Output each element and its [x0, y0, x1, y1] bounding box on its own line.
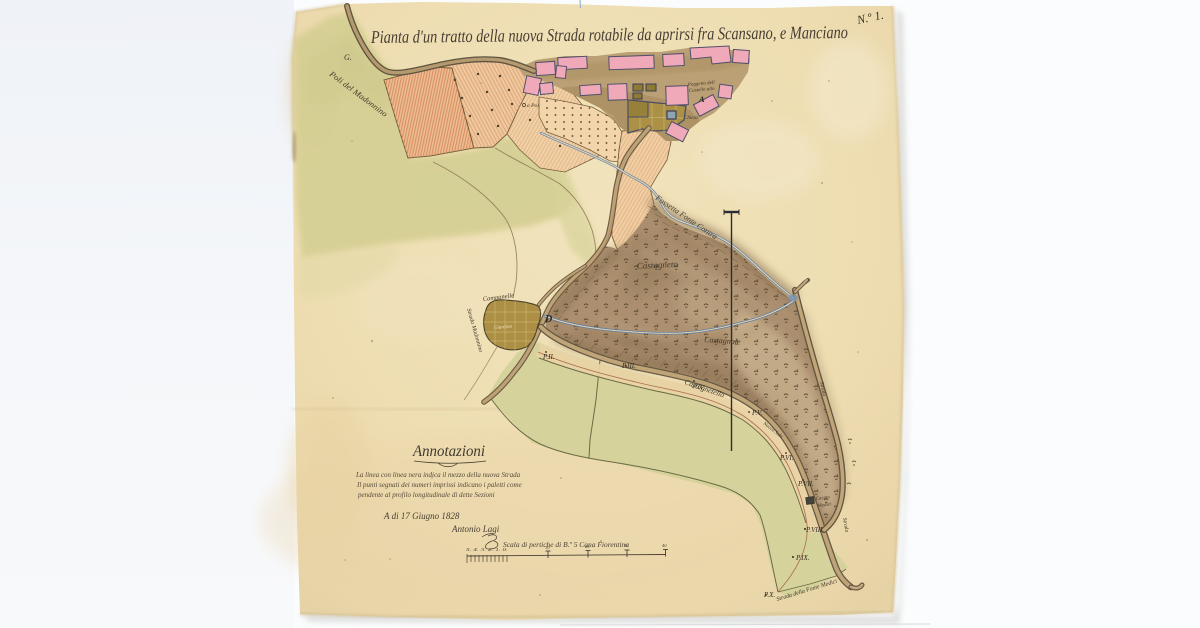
- svg-text:Scala di pertiche di B.º 5 Can: Scala di pertiche di B.º 5 Cana Fiorenti…: [503, 541, 630, 549]
- svg-text:30: 30: [624, 543, 629, 548]
- svg-text:P.VI.: P.VI.: [779, 454, 794, 462]
- svg-text:Annotazioni: Annotazioni: [412, 443, 485, 460]
- svg-text:40: 40: [662, 543, 667, 548]
- svg-text:P.III.: P.III.: [621, 362, 636, 370]
- svg-text:pendente al profilo longitudin: pendente al profilo longitudinale di det…: [357, 491, 495, 499]
- svg-text:D: D: [544, 314, 552, 325]
- svg-text:10: 10: [545, 545, 550, 550]
- svg-text:5. 4. 3. 2. 1. 0.: 5. 4. 3. 2. 1. 0.: [466, 548, 508, 552]
- svg-text:La linea con linea nera indica: La linea con linea nera indica il mezzo …: [355, 471, 521, 479]
- svg-text:Antonio Lagi: Antonio Lagi: [451, 524, 500, 534]
- svg-text:P.X.: P.X.: [763, 591, 775, 599]
- svg-text:P.V.: P.V.: [751, 409, 762, 417]
- svg-text:a Pol.: a Pol.: [527, 103, 540, 109]
- svg-text:G.: G.: [344, 53, 352, 62]
- svg-text:A di 17 Giugno 1828: A di 17 Giugno 1828: [383, 511, 460, 521]
- svg-text:Il punti segnati dei numeri im: Il punti segnati dei numeri imprissi ind…: [356, 481, 522, 489]
- svg-text:Chiesa: Chiesa: [684, 116, 698, 121]
- svg-text:20: 20: [585, 544, 590, 549]
- svg-text:P.VIII.: P.VIII.: [805, 526, 824, 534]
- svg-text:A: A: [698, 94, 705, 104]
- svg-text:P.IX.: P.IX.: [795, 554, 810, 562]
- svg-text:P.VII.: P.VII.: [797, 480, 814, 488]
- svg-text:P.II.: P.II.: [542, 353, 555, 361]
